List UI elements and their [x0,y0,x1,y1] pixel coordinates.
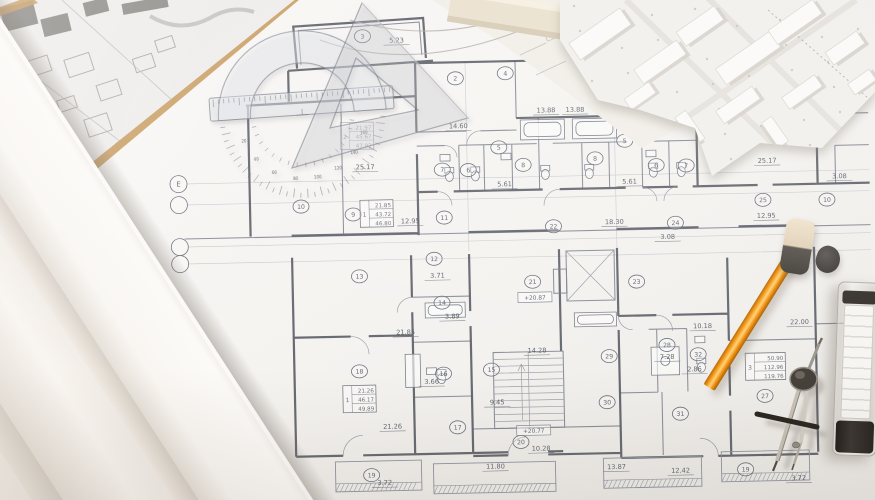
svg-text:80: 80 [293,176,299,181]
svg-text:1: 1 [346,397,350,404]
svg-text:60: 60 [272,170,278,175]
svg-text:24: 24 [671,220,679,227]
svg-text:32: 32 [694,351,702,358]
svg-text:7.28: 7.28 [660,353,675,361]
svg-text:100: 100 [314,174,322,180]
svg-text:5: 5 [623,138,627,145]
svg-text:10.18: 10.18 [693,322,712,330]
svg-text:10: 10 [823,197,831,204]
svg-text:22: 22 [549,223,557,230]
svg-text:5.61: 5.61 [622,178,637,186]
svg-text:8: 8 [593,156,597,163]
svg-text:20: 20 [241,138,247,143]
svg-text:13.88: 13.88 [566,106,585,114]
svg-text:1: 1 [363,212,367,219]
svg-text:16: 16 [440,371,448,378]
svg-text:4: 4 [503,71,507,78]
svg-text:50.90: 50.90 [767,356,784,362]
svg-text:5.61: 5.61 [497,180,512,188]
svg-text:17: 17 [454,425,462,432]
svg-text:31: 31 [676,411,684,418]
svg-text:112.96: 112.96 [764,365,784,371]
case-paper-scale [840,305,874,420]
case-top-band [842,290,875,304]
svg-text:2.86: 2.86 [687,365,702,373]
svg-text:25: 25 [759,197,767,204]
svg-text:14.60: 14.60 [449,122,468,130]
svg-text:8: 8 [521,162,525,169]
svg-text:2: 2 [453,76,457,83]
svg-text:19: 19 [368,472,376,479]
svg-text:119.76: 119.76 [764,374,784,380]
svg-text:18: 18 [355,369,363,376]
case-bottom-cap [835,420,874,453]
svg-text:10.28: 10.28 [532,444,551,452]
svg-text:30: 30 [603,399,611,406]
svg-text:11: 11 [440,215,448,222]
svg-text:12.42: 12.42 [671,466,690,474]
svg-text:+20.87: +20.87 [524,295,546,301]
svg-text:3.71: 3.71 [430,272,445,280]
svg-text:3.72: 3.72 [791,474,806,482]
svg-text:12.95: 12.95 [757,212,776,220]
svg-text:3.08: 3.08 [832,172,847,180]
svg-text:3.66: 3.66 [424,378,439,386]
svg-text:21.85: 21.85 [396,328,415,336]
svg-text:13: 13 [355,274,363,281]
svg-text:29: 29 [605,353,613,360]
svg-text:13.88: 13.88 [537,106,556,114]
svg-text:22.00: 22.00 [790,318,809,326]
svg-text:20: 20 [517,439,525,446]
svg-text:46.80: 46.80 [375,221,392,227]
svg-text:46.17: 46.17 [358,397,375,403]
svg-text:3.08: 3.08 [660,233,675,241]
svg-text:49.89: 49.89 [358,406,375,412]
svg-text:21: 21 [529,279,537,286]
svg-text:21.85: 21.85 [375,203,392,209]
svg-text:19: 19 [742,467,750,474]
svg-text:40: 40 [254,157,260,162]
svg-text:E: E [176,181,181,189]
svg-text:14.28: 14.28 [528,346,547,354]
svg-text:28: 28 [663,342,671,349]
svg-text:3: 3 [748,365,752,372]
svg-text:9: 9 [351,212,355,219]
svg-text:18.30: 18.30 [605,218,624,226]
svg-text:11.80: 11.80 [486,462,505,470]
svg-text:6: 6 [654,162,658,169]
svg-text:7: 7 [684,163,688,170]
svg-text:7: 7 [440,167,444,174]
svg-text:12: 12 [430,256,438,263]
svg-text:25.17: 25.17 [758,157,777,165]
svg-text:5: 5 [497,145,501,152]
svg-text:21.26: 21.26 [383,422,402,430]
svg-text:6: 6 [466,167,470,174]
svg-text:+20.77: +20.77 [523,429,545,435]
svg-text:27: 27 [761,393,769,400]
lead-case [832,281,875,456]
svg-text:120: 120 [334,165,342,171]
svg-text:43.72: 43.72 [375,212,391,218]
svg-text:25.17: 25.17 [356,163,375,171]
svg-text:3.89: 3.89 [445,312,460,320]
svg-text:12.95: 12.95 [401,217,420,225]
desk-photo: E 32455768867910112224251012131415161718… [0,0,875,500]
svg-text:3.72: 3.72 [377,479,392,487]
svg-text:23: 23 [633,279,641,286]
base-layers: E 32455768867910112224251012131415161718… [0,0,875,500]
svg-text:9.45: 9.45 [490,398,505,406]
svg-text:13.87: 13.87 [607,463,626,471]
svg-text:15: 15 [487,367,495,374]
svg-text:10: 10 [297,204,305,211]
svg-text:14: 14 [438,300,446,307]
svg-text:21.26: 21.26 [358,388,375,394]
